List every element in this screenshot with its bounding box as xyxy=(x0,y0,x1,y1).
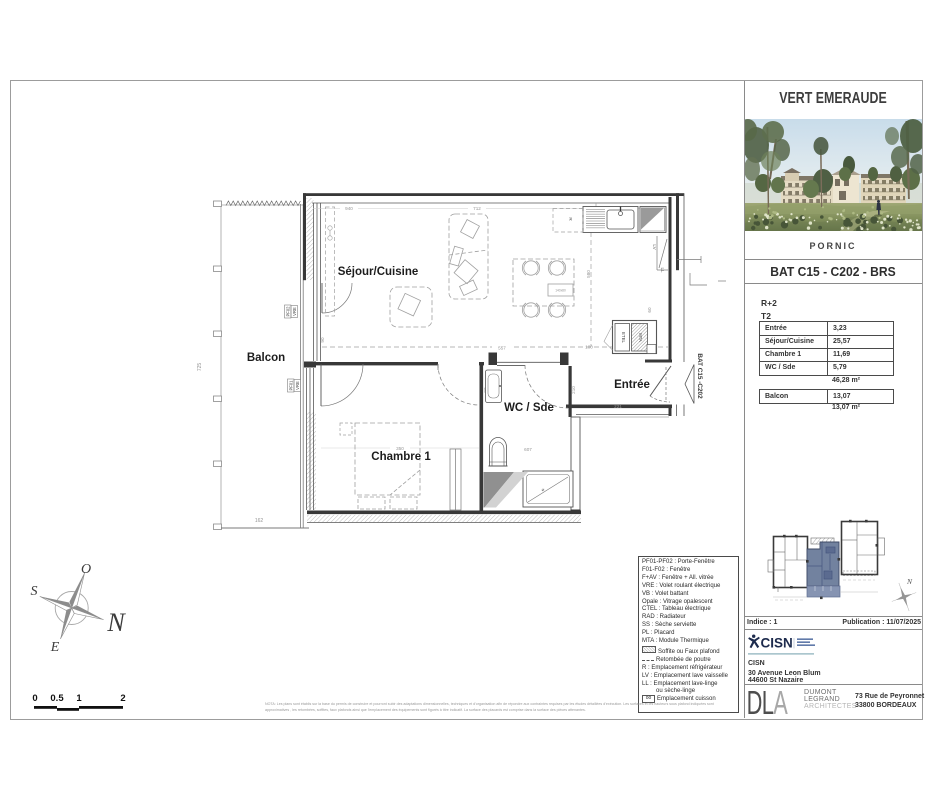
svg-text:60: 60 xyxy=(647,307,652,313)
svg-text:Chambre 1: Chambre 1 xyxy=(371,451,431,463)
svg-text:0: 0 xyxy=(32,693,37,704)
svg-text:Balcon: Balcon xyxy=(247,352,285,364)
svg-text:N: N xyxy=(906,577,913,586)
svg-text:LV: LV xyxy=(652,244,657,250)
svg-text:0.5: 0.5 xyxy=(50,693,64,704)
svg-text:R: R xyxy=(568,217,573,221)
svg-text:100: 100 xyxy=(585,345,593,350)
svg-text:162: 162 xyxy=(255,518,264,524)
svg-text:940: 940 xyxy=(345,206,353,211)
svg-text:221: 221 xyxy=(614,404,622,409)
svg-text:90: 90 xyxy=(320,337,325,343)
svg-text:1: 1 xyxy=(76,693,82,704)
svg-text:VRE: VRE xyxy=(292,307,297,316)
svg-text:557: 557 xyxy=(498,346,506,351)
svg-text:PF02: PF02 xyxy=(285,306,290,317)
svg-text:140x80: 140x80 xyxy=(555,289,566,293)
svg-text:LL: LL xyxy=(660,267,665,273)
svg-text:712: 712 xyxy=(473,206,481,211)
svg-text:Séjour/Cuisine: Séjour/Cuisine xyxy=(338,266,419,278)
svg-text:E: E xyxy=(50,640,60,655)
svg-text:O: O xyxy=(81,562,91,577)
svg-text:MTA: MTA xyxy=(638,333,643,342)
svg-text:210: 210 xyxy=(571,386,576,394)
svg-text:580: 580 xyxy=(586,270,591,278)
svg-text:⌀: ⌀ xyxy=(542,487,545,492)
svg-text:BAT C15 -C202: BAT C15 -C202 xyxy=(696,353,703,399)
svg-text:ETEL: ETEL xyxy=(621,332,626,344)
svg-text:2: 2 xyxy=(120,693,125,704)
svg-text:S: S xyxy=(31,584,38,599)
svg-text:WC / Sde: WC / Sde xyxy=(504,402,554,414)
svg-text:N: N xyxy=(106,608,126,637)
svg-text:CISN: CISN xyxy=(761,636,793,651)
svg-text:Entrée: Entrée xyxy=(614,379,650,391)
svg-text:VRE: VRE xyxy=(295,381,300,390)
svg-text:607: 607 xyxy=(524,447,532,452)
svg-text:PF01: PF01 xyxy=(288,380,293,391)
svg-text:725: 725 xyxy=(197,363,203,372)
